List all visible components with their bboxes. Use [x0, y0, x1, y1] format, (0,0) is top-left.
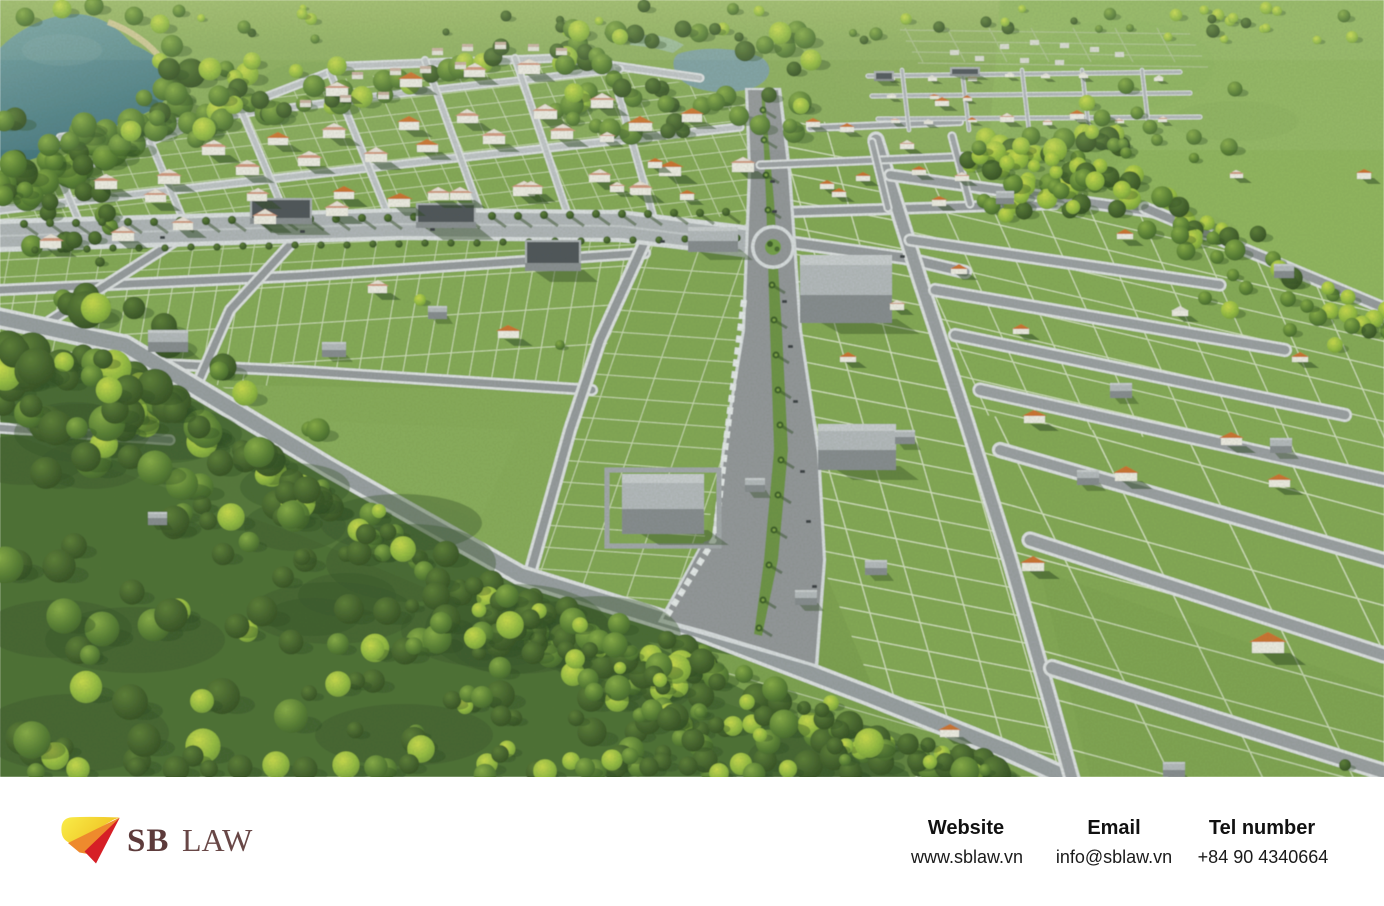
svg-text:www.sblaw.vn: www.sblaw.vn	[910, 847, 1023, 867]
svg-text:LAW: LAW	[182, 822, 253, 858]
svg-text:Tel number: Tel number	[1209, 817, 1316, 839]
svg-text:+84 90 4340664: +84 90 4340664	[1198, 847, 1329, 867]
svg-text:Email: Email	[1087, 817, 1140, 839]
svg-text:Website: Website	[928, 817, 1004, 839]
svg-text:SB: SB	[127, 823, 169, 859]
svg-text:info@sblaw.vn: info@sblaw.vn	[1056, 847, 1172, 867]
